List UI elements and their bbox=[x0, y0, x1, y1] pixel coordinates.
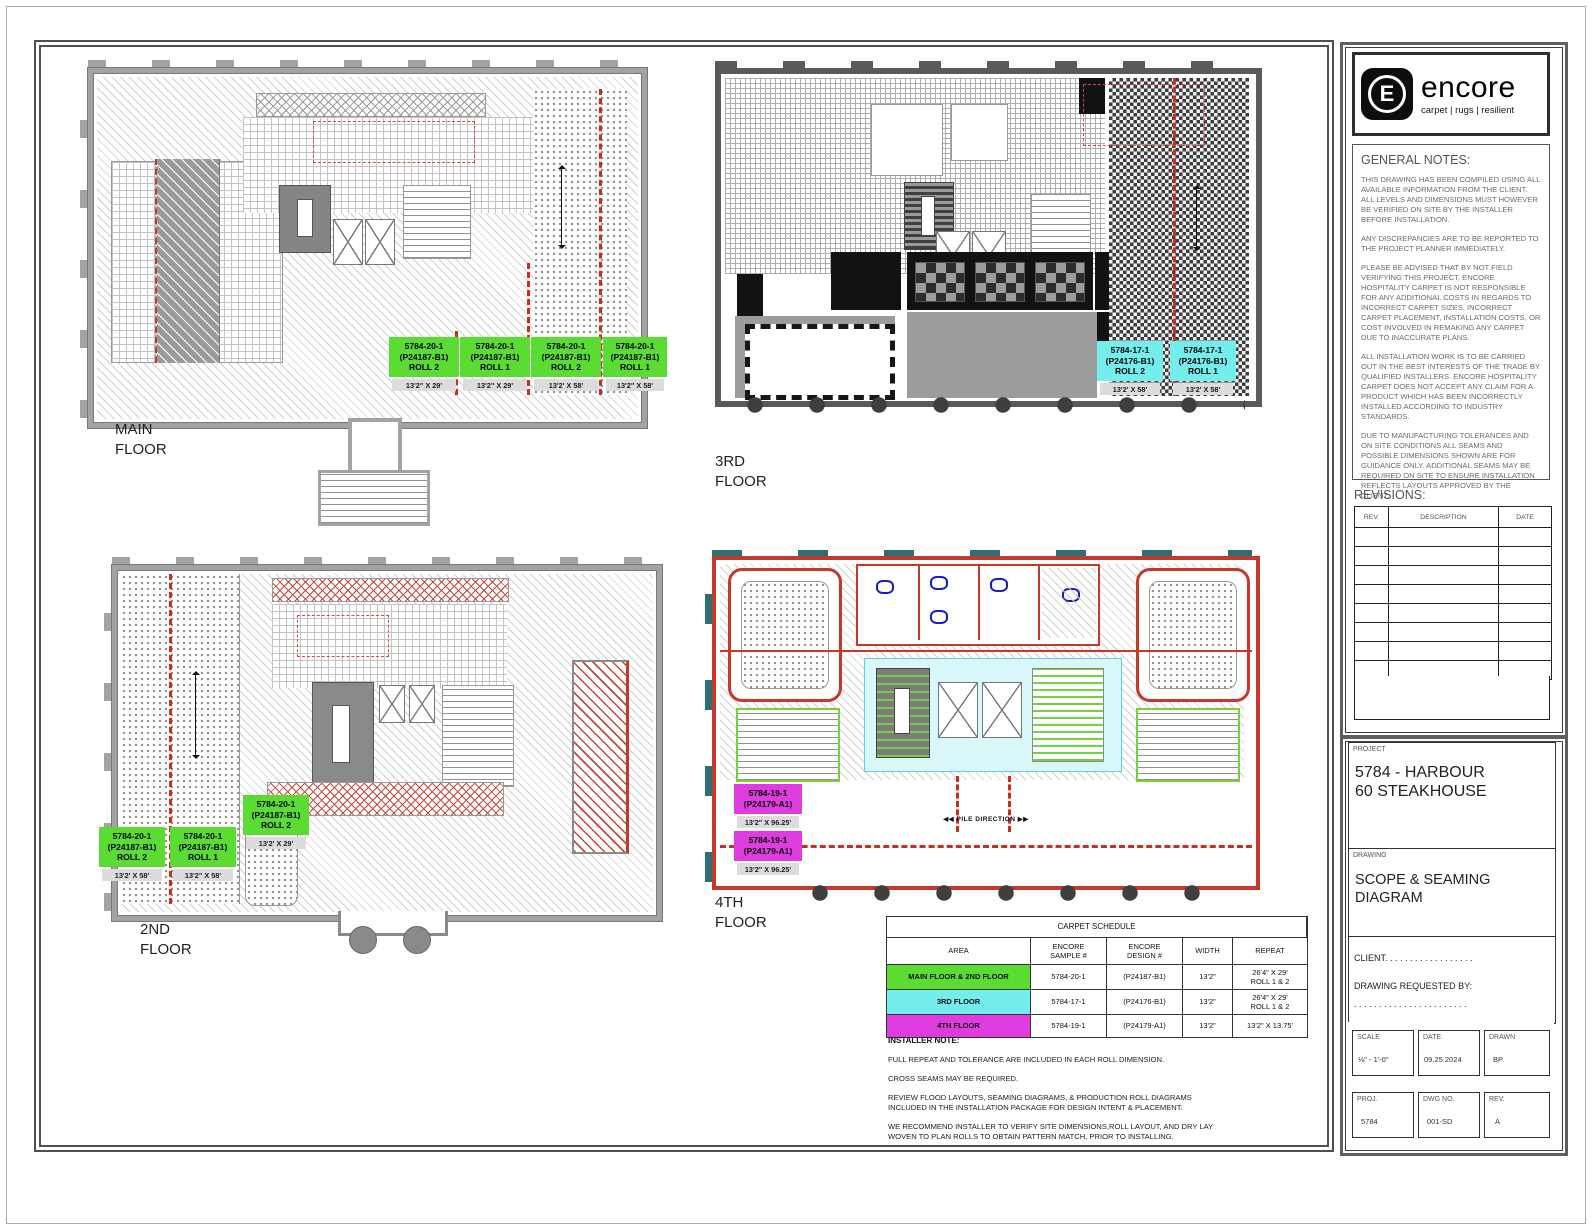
column-header: WIDTH bbox=[1183, 938, 1233, 965]
drawn-label: DRAWN bbox=[1489, 1034, 1515, 1041]
second-floor-label: 2ND FLOOR bbox=[140, 920, 192, 959]
bar-area bbox=[831, 252, 901, 310]
roll-dimension: 13'2' X 29' bbox=[246, 837, 306, 849]
revision-cell bbox=[1499, 642, 1551, 661]
rev-label: REV. bbox=[1489, 1096, 1505, 1103]
logo-tagline: carpet | rugs | resilient bbox=[1421, 105, 1516, 116]
roll-label: 5784-20-1 (P24187-B1) ROLL 1 bbox=[460, 337, 530, 377]
revision-cell bbox=[1389, 642, 1499, 661]
rev-value: A bbox=[1495, 1117, 1500, 1126]
revision-cell bbox=[1389, 528, 1499, 547]
elevator-icon bbox=[379, 685, 405, 723]
stairs bbox=[442, 685, 514, 787]
feature-carpet-area bbox=[572, 660, 629, 854]
drawing-label: DRAWING bbox=[1353, 852, 1387, 859]
stair-core-slot bbox=[921, 196, 935, 236]
pile-direction-label: ◀◀ PILE DIRECTION ▶▶ bbox=[886, 815, 1086, 823]
logo-box: E encore carpet | rugs | resilient bbox=[1352, 52, 1550, 136]
schedule-cell: 5784-20-1 bbox=[1031, 965, 1107, 990]
schedule-cell: 13'2" bbox=[1183, 1015, 1233, 1037]
project-section: PROJECT 5784 - HARBOUR 60 STEAKHOUSE bbox=[1348, 742, 1556, 850]
stairs bbox=[1032, 668, 1104, 762]
fourth-floor-columns bbox=[790, 884, 1230, 902]
table-group bbox=[1035, 262, 1085, 302]
client-section: CLIENT. . . . . . . . . . . . . . . . . … bbox=[1348, 936, 1556, 1024]
entrance-stairs bbox=[318, 470, 430, 526]
logo-wordmark: encore bbox=[1421, 73, 1516, 103]
proj-label: PROJ. bbox=[1357, 1096, 1378, 1103]
revisions-table: REV. DESCRIPTION DATE bbox=[1354, 506, 1552, 680]
roll-label: 5784-20-1 (P24187-B1) ROLL 1 bbox=[603, 337, 667, 377]
revision-cell bbox=[1499, 566, 1551, 585]
third-floor-columns bbox=[725, 396, 1245, 414]
schedule-area-cell: MAIN FLOOR & 2ND FLOOR bbox=[887, 965, 1031, 990]
banquette bbox=[736, 708, 840, 782]
schedule-cell: (P24179-A1) bbox=[1107, 1015, 1183, 1037]
roll-label: 5784-19-1 (P24179-A1) bbox=[734, 784, 802, 814]
schedule-title: CARPET SCHEDULE bbox=[887, 917, 1307, 938]
installer-notes-title: INSTALLER NOTE: bbox=[888, 1036, 1218, 1045]
roll-dimension: 13'2' X 58' bbox=[102, 869, 162, 881]
proj-value: 5784 bbox=[1361, 1117, 1378, 1126]
installer-note: CROSS SEAMS MAY BE REQUIRED. bbox=[888, 1074, 1218, 1084]
revision-cell bbox=[1389, 547, 1499, 566]
drawing-sheet: MAIN FLOOR 5784-20-1 (P24187-B1) ROLL 2 … bbox=[0, 0, 1592, 1230]
revisions-footer-box bbox=[1354, 676, 1550, 720]
requested-by-dots: . . . . . . . . . . . . . . . . . . . . … bbox=[1354, 999, 1467, 1009]
toilet-icon bbox=[876, 580, 894, 594]
drawing-name: SCOPE & SEAMING DIAGRAM bbox=[1355, 871, 1490, 907]
dwg-label: DWG NO. bbox=[1423, 1096, 1455, 1103]
requested-by-label: DRAWING REQUESTED BY: bbox=[1354, 981, 1472, 991]
roll-dimension: 13'2' X 58' bbox=[1100, 383, 1160, 395]
roll-dimension: 13'2" X 29' bbox=[463, 379, 527, 391]
seam-marker-rect bbox=[297, 615, 389, 657]
schedule-cell: 13'2" X 13.75' bbox=[1233, 1015, 1307, 1037]
roll-dimension: 13'2" X 96.25' bbox=[737, 816, 799, 828]
number-row: PROJ. 5784 DWG NO. 001-SD REV. A bbox=[1348, 1086, 1554, 1144]
stair-core-slot bbox=[894, 688, 910, 734]
column-header: DATE bbox=[1499, 507, 1551, 528]
schedule-area-cell: 3RD FLOOR bbox=[887, 990, 1031, 1015]
dining-floor bbox=[907, 312, 1097, 398]
banquette-lattice-band bbox=[272, 578, 509, 602]
second-floor-wall-bumps-top bbox=[112, 557, 652, 565]
column-header: REPEAT bbox=[1233, 938, 1307, 965]
revision-cell bbox=[1389, 566, 1499, 585]
elevator-icon bbox=[333, 219, 363, 265]
area-rug bbox=[1149, 581, 1237, 689]
scale-box: SCALE ⅛" - 1'-0" bbox=[1352, 1030, 1414, 1076]
revision-cell bbox=[1499, 604, 1551, 623]
fourth-floor-label: 4TH FLOOR bbox=[715, 893, 767, 932]
schedule-cell: 5784-17-1 bbox=[1031, 990, 1107, 1015]
main-floor-label: MAIN FLOOR bbox=[115, 420, 167, 459]
elevator-icon bbox=[365, 219, 395, 265]
seam-line bbox=[956, 776, 959, 832]
revision-cell bbox=[1355, 528, 1389, 547]
drawing-section: DRAWING SCOPE & SEAMING DIAGRAM bbox=[1348, 848, 1556, 938]
revision-cell bbox=[1499, 585, 1551, 604]
drawn-box: DRAWN BP bbox=[1484, 1030, 1550, 1076]
roll-label: 5784-17-1 (P24176-B1) ROLL 1 bbox=[1170, 341, 1236, 381]
scale-row: SCALE ⅛" - 1'-0" DATE. 09.25.2024 DRAWN … bbox=[1348, 1022, 1554, 1082]
roll-dimension: 13'2' X 58' bbox=[534, 379, 598, 391]
canopy-column bbox=[349, 926, 377, 954]
column-header: AREA bbox=[887, 938, 1031, 965]
project-label: PROJECT bbox=[1353, 746, 1386, 753]
schedule-cell: 13'2" bbox=[1183, 990, 1233, 1015]
canopy-column bbox=[403, 926, 431, 954]
schedule-cell: (P24176-B1) bbox=[1107, 990, 1183, 1015]
revision-cell bbox=[1499, 623, 1551, 642]
roll-dimension: 13'2" X 58' bbox=[606, 379, 664, 391]
banquette bbox=[1136, 708, 1240, 782]
schedule-cell: (P24187-B1) bbox=[1107, 965, 1183, 990]
tile-area bbox=[1042, 568, 1096, 638]
private-dining-room bbox=[728, 568, 842, 702]
roll-label: 5784-20-1 (P24187-B1) ROLL 2 bbox=[243, 795, 309, 835]
table-group bbox=[915, 262, 965, 302]
scale-value: ⅛" - 1'-0" bbox=[1358, 1055, 1389, 1064]
private-dining-room bbox=[1136, 568, 1250, 702]
elevator-icon bbox=[938, 682, 978, 738]
roll-label: 5784-20-1 (P24187-B1) ROLL 2 bbox=[99, 827, 165, 867]
pile-direction-arrow bbox=[195, 675, 196, 755]
second-floor-plan bbox=[112, 565, 662, 921]
third-floor-label: 3RD FLOOR bbox=[715, 452, 767, 491]
drawn-value: BP bbox=[1493, 1055, 1503, 1064]
schedule-cell: 5784-19-1 bbox=[1031, 1015, 1107, 1037]
revisions-title: REVISIONS: bbox=[1354, 488, 1426, 502]
table-group bbox=[975, 262, 1025, 302]
roll-dimension: 13'2" X 58' bbox=[173, 869, 233, 881]
revision-cell bbox=[1499, 528, 1551, 547]
revision-cell bbox=[1355, 566, 1389, 585]
revision-cell bbox=[1355, 604, 1389, 623]
washroom-partition bbox=[1038, 566, 1040, 640]
revision-cell bbox=[1499, 547, 1551, 566]
date-box: DATE. 09.25.2024 bbox=[1418, 1030, 1480, 1076]
column-header: ENCORE SAMPLE # bbox=[1031, 938, 1107, 965]
encore-logo: E bbox=[1361, 68, 1413, 120]
stair-core-slot bbox=[297, 199, 313, 237]
roll-label: 5784-20-1 (P24187-B1) ROLL 2 bbox=[389, 337, 459, 377]
date-label: DATE. bbox=[1423, 1034, 1443, 1041]
decorative-lattice-band bbox=[256, 93, 486, 117]
pile-direction-arrow bbox=[1196, 189, 1197, 247]
column-header: DESCRIPTION bbox=[1389, 507, 1499, 528]
general-note: THIS DRAWING HAS BEEN COMPILED USING ALL… bbox=[1361, 175, 1541, 225]
roll-dimension: 13'2' X 58' bbox=[1173, 383, 1233, 395]
main-floor-wall-bumps-top bbox=[88, 60, 637, 68]
revision-cell bbox=[1389, 604, 1499, 623]
schedule-cell: 13'2" bbox=[1183, 965, 1233, 990]
scale-label: SCALE bbox=[1357, 1034, 1380, 1041]
rev-box: REV. A bbox=[1484, 1092, 1550, 1138]
room bbox=[951, 104, 1008, 161]
stairs bbox=[403, 185, 471, 259]
stair-band bbox=[155, 159, 220, 363]
revision-cell bbox=[1355, 623, 1389, 642]
banquette-band bbox=[907, 252, 1093, 310]
project-name: 5784 - HARBOUR 60 STEAKHOUSE bbox=[1355, 763, 1487, 801]
main-floor-wall-bumps-left bbox=[80, 68, 88, 418]
third-floor-wall-bumps-top bbox=[715, 61, 1250, 68]
general-notes-title: GENERAL NOTES: bbox=[1361, 153, 1541, 167]
revision-cell bbox=[1389, 585, 1499, 604]
dwg-value: 001-SD bbox=[1427, 1117, 1452, 1126]
revision-cell bbox=[1355, 547, 1389, 566]
toilet-icon bbox=[930, 610, 948, 624]
pile-direction-arrow bbox=[561, 169, 562, 245]
washroom-partition bbox=[918, 566, 920, 640]
revision-cell bbox=[1355, 585, 1389, 604]
installer-note: FULL REPEAT AND TOLERANCE ARE INCLUDED I… bbox=[888, 1055, 1218, 1065]
general-note: ANY DISCREPANCIES ARE TO BE REPORTED TO … bbox=[1361, 234, 1541, 254]
schedule-cell: 26'4" X 29' ROLL 1 & 2 bbox=[1233, 990, 1307, 1015]
general-note: PLEASE BE ADVISED THAT BY NOT FIELD VERI… bbox=[1361, 263, 1541, 343]
roll-dimension: 13'2" X 96.25' bbox=[737, 863, 799, 875]
bar-area bbox=[737, 274, 763, 316]
installer-note: REVIEW FLOOD LAYOUTS, SEAMING DIAGRAMS, … bbox=[888, 1093, 1218, 1113]
seam-marker-rect bbox=[313, 121, 475, 163]
installer-notes: INSTALLER NOTE: FULL REPEAT AND TOLERANC… bbox=[888, 1036, 1218, 1142]
roll-label: 5784-19-1 (P24179-A1) bbox=[734, 831, 802, 861]
elevator-icon bbox=[409, 685, 435, 723]
roll-label: 5784-20-1 (P24187-B1) ROLL 1 bbox=[170, 827, 236, 867]
room bbox=[871, 104, 943, 176]
proj-box: PROJ. 5784 bbox=[1352, 1092, 1414, 1138]
dwg-box: DWG NO. 001-SD bbox=[1418, 1092, 1480, 1138]
toilet-icon bbox=[930, 576, 948, 590]
schedule-area-cell: 4TH FLOOR bbox=[887, 1015, 1031, 1037]
seam-marker-rect bbox=[1083, 84, 1205, 146]
washrooms bbox=[856, 564, 1100, 646]
client-line: CLIENT. . . . . . . . . . . . . . . . . … bbox=[1354, 953, 1473, 963]
date-value: 09.25.2024 bbox=[1424, 1055, 1462, 1064]
roll-label: 5784-20-1 (P24187-B1) ROLL 2 bbox=[531, 337, 601, 377]
elevator-icon bbox=[982, 682, 1022, 738]
seam-line bbox=[1008, 776, 1011, 832]
revision-cell bbox=[1355, 642, 1389, 661]
area-rug bbox=[741, 581, 829, 689]
private-room-dashed bbox=[745, 324, 895, 400]
encore-logo-letter: E bbox=[1361, 68, 1413, 120]
washroom-partition bbox=[978, 566, 980, 640]
revision-cell bbox=[1389, 623, 1499, 642]
corridor-wall bbox=[720, 650, 1252, 652]
schedule-cell: 26'4" X 29' ROLL 1 & 2 bbox=[1233, 965, 1307, 990]
general-notes-box: GENERAL NOTES: THIS DRAWING HAS BEEN COM… bbox=[1352, 144, 1550, 480]
entrance-vestibule bbox=[348, 418, 402, 478]
roll-label: 5784-17-1 (P24176-B1) ROLL 2 bbox=[1097, 341, 1163, 381]
installer-note: WE RECOMMEND INSTALLER TO VERIFY SITE DI… bbox=[888, 1122, 1218, 1142]
column-header: REV. bbox=[1355, 507, 1389, 528]
general-note: ALL INSTALLATION WORK IS TO BE CARRIED O… bbox=[1361, 352, 1541, 422]
carpet-schedule-table: CARPET SCHEDULE AREA ENCORE SAMPLE # ENC… bbox=[886, 916, 1308, 1038]
column-header: ENCORE DESIGN # bbox=[1107, 938, 1183, 965]
roll-dimension: 13'2" X 29' bbox=[392, 379, 456, 391]
toilet-icon bbox=[990, 578, 1008, 592]
stair-core-slot bbox=[332, 705, 350, 763]
